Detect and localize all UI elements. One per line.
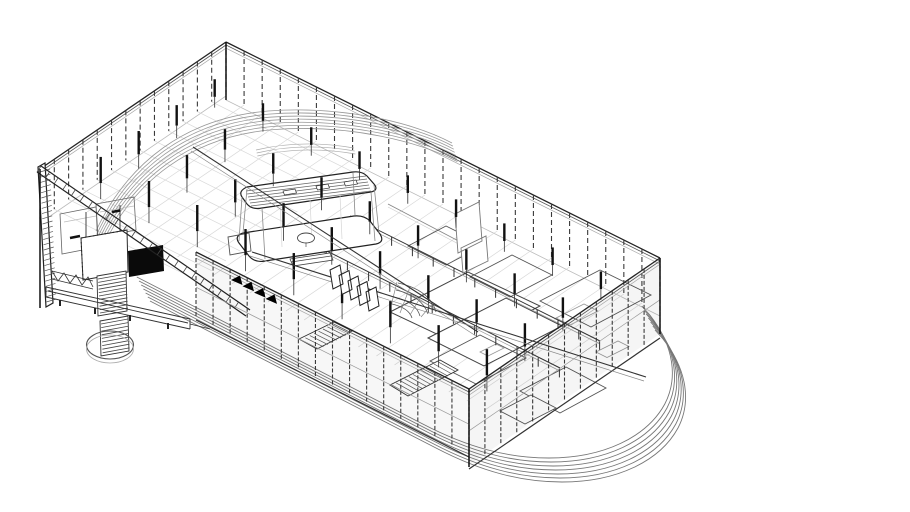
building-axonometric-svg: Axonometric wireframe cutaway drawing of… bbox=[0, 0, 910, 512]
axonometric-drawing: Axonometric wireframe cutaway drawing of… bbox=[0, 0, 910, 512]
canvas: Axonometric wireframe cutaway drawing of… bbox=[0, 0, 910, 512]
